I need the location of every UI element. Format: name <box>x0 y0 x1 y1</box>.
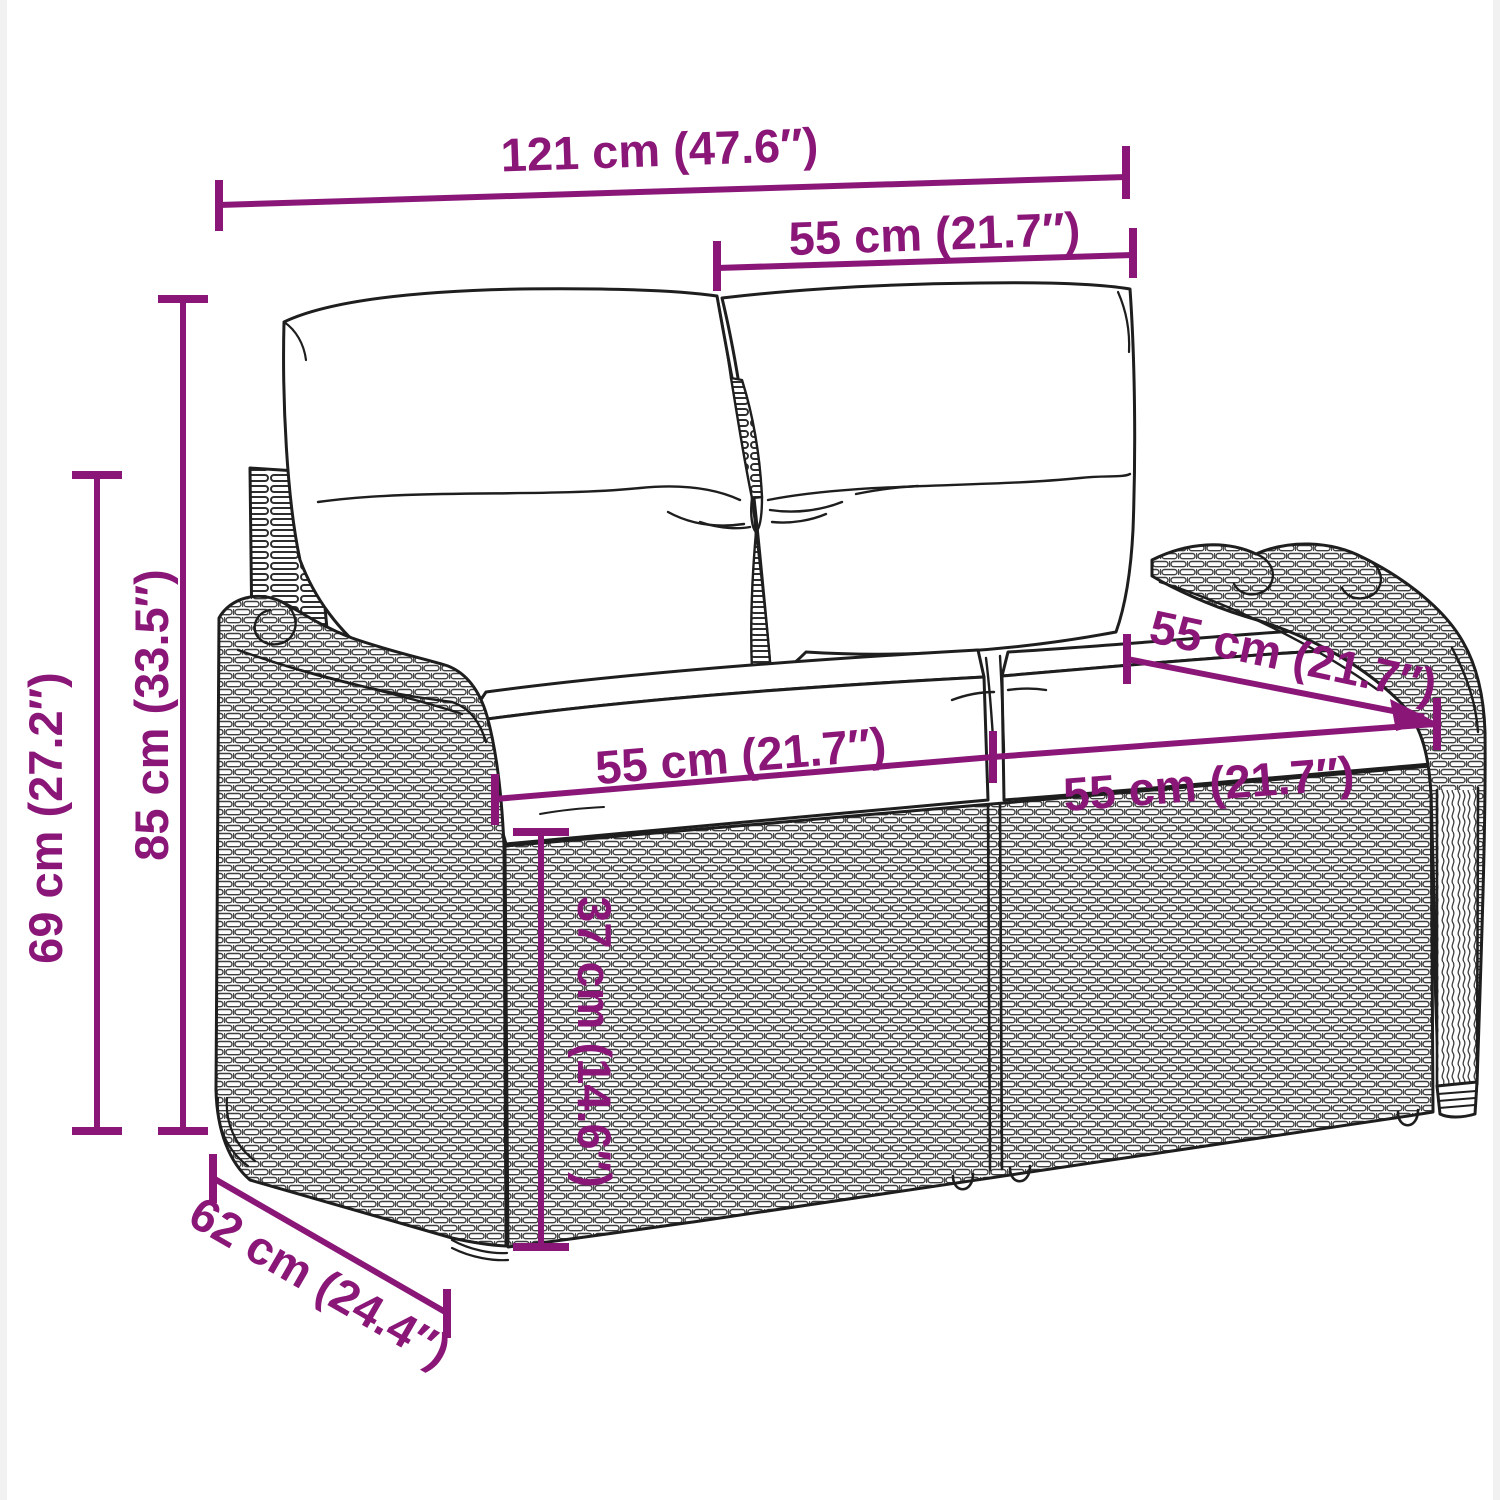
seat-height-label: 37 cm (14.6″) <box>568 896 621 1188</box>
total-height-label: 85 cm (33.5″) <box>125 569 178 861</box>
image-edge-left <box>0 0 7 1500</box>
dimension-armrest-height: 69 cm (27.2″) <box>19 475 122 1131</box>
left-armrest <box>216 596 508 1260</box>
diagram-canvas: 121 cm (47.6″) 55 cm (21.7″) 85 cm (33.5… <box>0 0 1500 1500</box>
back-cushion-right <box>722 283 1135 676</box>
image-edge-right <box>1493 0 1500 1500</box>
right-arm-column <box>1437 790 1478 1086</box>
overall-width-label: 121 cm (47.6″) <box>500 117 819 181</box>
dimension-total-height: 85 cm (33.5″) <box>125 299 208 1131</box>
armrest-height-label: 69 cm (27.2″) <box>19 672 72 964</box>
dimension-backrest-width: 55 cm (21.7″) <box>717 202 1133 291</box>
base-front <box>505 766 1433 1247</box>
backrest-width-label: 55 cm (21.7″) <box>788 202 1081 265</box>
dimension-diagram: 121 cm (47.6″) 55 cm (21.7″) 85 cm (33.5… <box>0 0 1500 1500</box>
